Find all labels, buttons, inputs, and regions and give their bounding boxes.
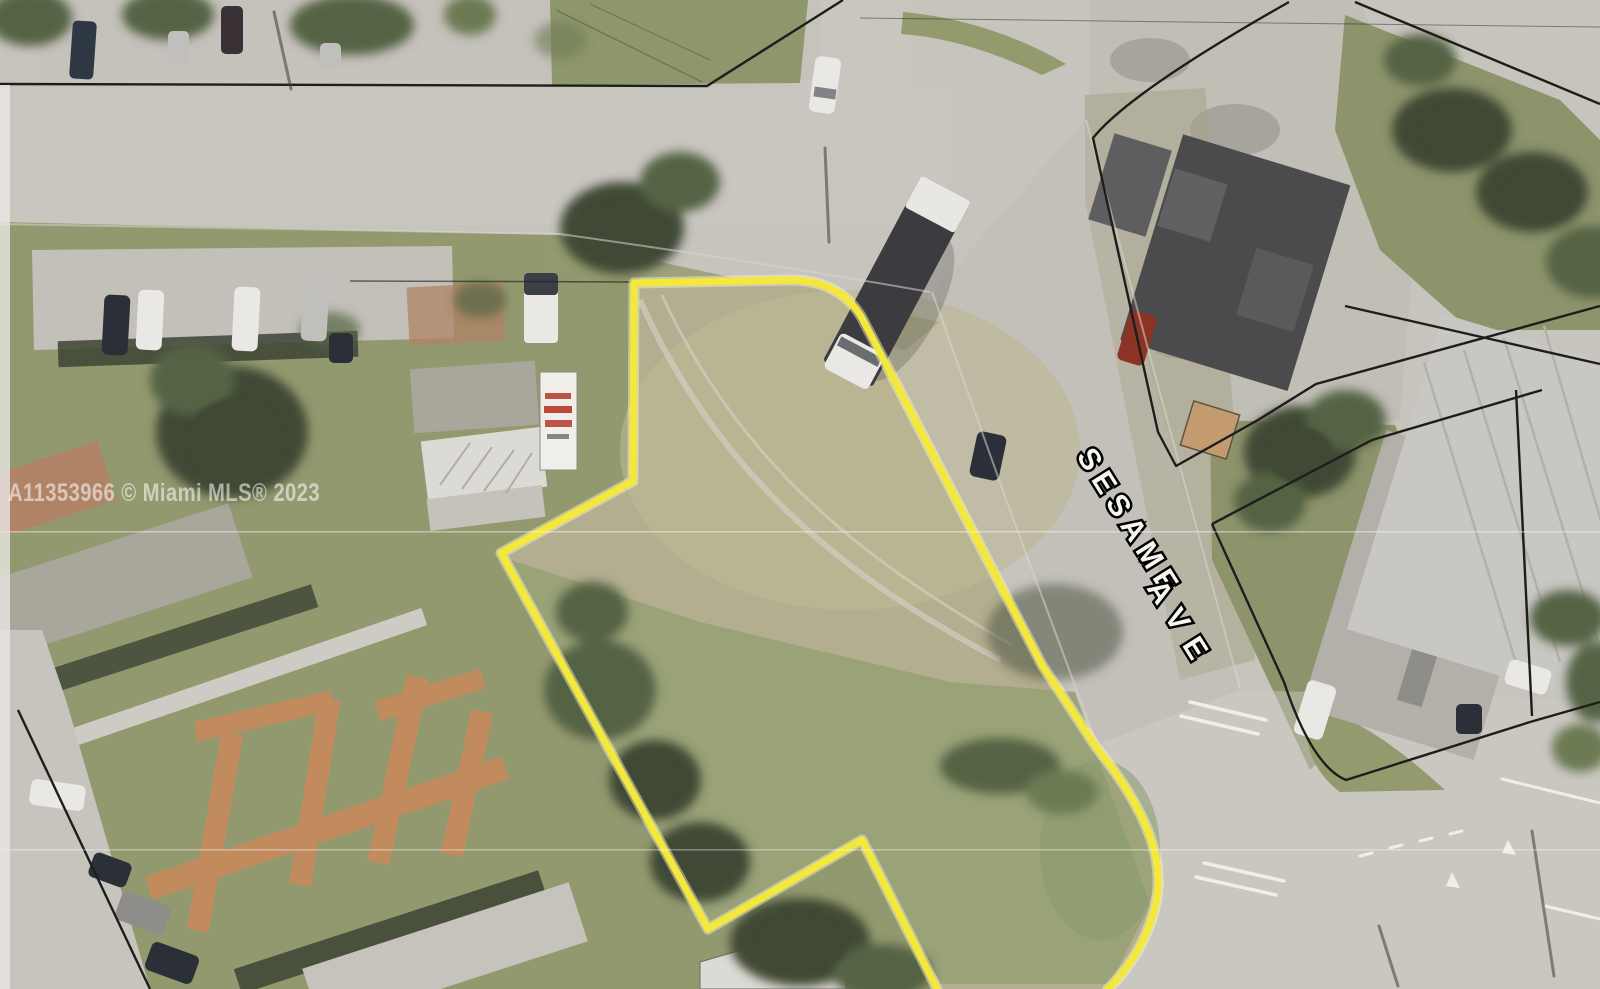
car xyxy=(300,276,329,341)
fenced-yard-grass xyxy=(550,0,808,85)
car xyxy=(231,286,260,351)
car xyxy=(69,20,97,80)
corner-house xyxy=(410,361,547,531)
aerial-scene: SESAME AVE A11353966 © Miami MLS® 2023 xyxy=(0,0,1600,989)
photo-edge-strip xyxy=(0,85,10,989)
car xyxy=(101,294,130,355)
scan-artifact-line xyxy=(0,531,1600,533)
car xyxy=(320,43,341,69)
roadside-sign xyxy=(540,372,577,470)
mls-watermark: A11353966 © Miami MLS® 2023 xyxy=(8,479,320,507)
top-road xyxy=(0,90,950,225)
aerial-photo: SESAME AVE A11353966 © Miami MLS® 2023 xyxy=(0,0,1600,989)
car xyxy=(135,289,164,350)
fence-line xyxy=(350,281,634,282)
scan-artifact-line xyxy=(0,849,1600,851)
car xyxy=(329,333,353,363)
truck-cab xyxy=(524,273,558,295)
car xyxy=(168,31,189,65)
suv xyxy=(1456,704,1482,734)
car xyxy=(221,6,243,54)
